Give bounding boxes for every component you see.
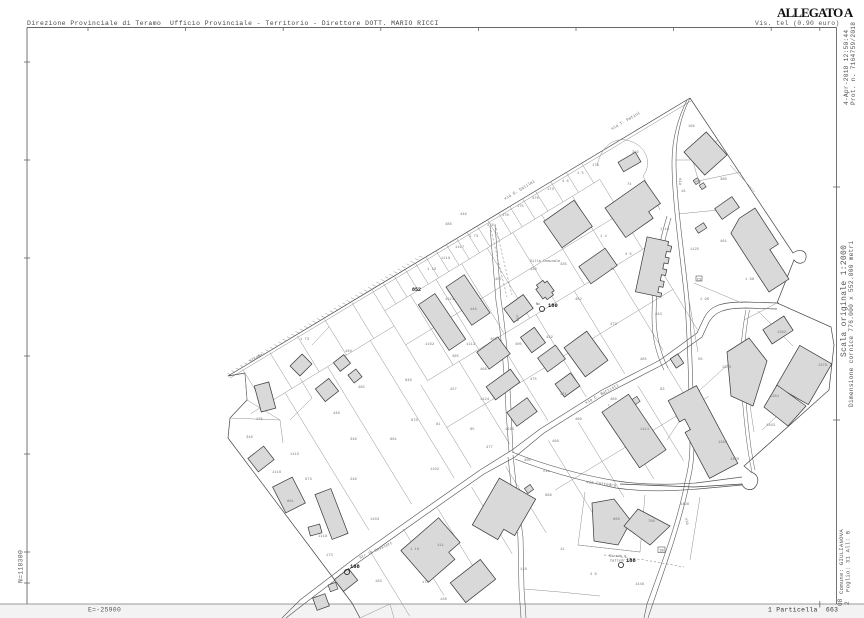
svg-text:473: 473 xyxy=(610,323,618,327)
svg-text:1 4: 1 4 xyxy=(600,235,608,239)
svg-text:846: 846 xyxy=(405,379,413,383)
svg-text:Vis. tel (0.90 euro): Vis. tel (0.90 euro) xyxy=(755,20,840,27)
svg-text:477: 477 xyxy=(486,446,493,450)
svg-text:486: 486 xyxy=(610,398,618,402)
svg-text:852: 852 xyxy=(412,287,421,293)
svg-text:74: 74 xyxy=(627,183,632,187)
svg-text:11: 11 xyxy=(560,548,565,552)
svg-text:457: 457 xyxy=(495,278,502,282)
svg-text:4 6: 4 6 xyxy=(562,180,570,184)
svg-text:788: 788 xyxy=(648,520,656,524)
svg-text:435: 435 xyxy=(560,263,568,267)
svg-text:128: 128 xyxy=(440,598,448,602)
svg-text:461: 461 xyxy=(720,240,728,244)
svg-text:2: 2 xyxy=(844,601,851,605)
svg-text:1382: 1382 xyxy=(777,331,787,335)
svg-text:178: 178 xyxy=(592,164,600,168)
svg-text:1121: 1121 xyxy=(445,298,455,302)
svg-text:446: 446 xyxy=(470,308,478,312)
svg-text:111: 111 xyxy=(437,544,445,548)
svg-text:Villa Comunale: Villa Comunale xyxy=(530,259,560,264)
svg-text:180: 180 xyxy=(548,303,558,309)
svg-text:C2: C2 xyxy=(697,278,701,282)
svg-text:1103: 1103 xyxy=(370,518,380,522)
svg-text:178: 178 xyxy=(422,581,430,585)
svg-text:1124: 1124 xyxy=(480,398,490,402)
svg-text:302: 302 xyxy=(632,151,640,155)
svg-text:1 98: 1 98 xyxy=(745,278,755,282)
svg-text:via: via xyxy=(543,469,551,474)
svg-text:4 5: 4 5 xyxy=(625,253,633,257)
svg-text:471: 471 xyxy=(560,393,568,397)
svg-text:1446: 1446 xyxy=(635,583,645,587)
svg-text:Dimensione cornice 776.000 x 5: Dimensione cornice 776.000 x 552.000 met… xyxy=(848,241,855,407)
svg-text:58: 58 xyxy=(698,358,703,362)
svg-text:400: 400 xyxy=(515,343,523,347)
svg-text:Nc: Nc xyxy=(536,303,540,307)
svg-text:432: 432 xyxy=(546,336,554,340)
svg-text:348: 348 xyxy=(246,436,254,440)
svg-text:ALLEGATO A: ALLEGATO A xyxy=(777,5,854,20)
svg-text:861: 861 xyxy=(390,438,398,442)
svg-text:468: 468 xyxy=(480,368,488,372)
svg-text:1 Particella 663: 1 Particella 663 xyxy=(768,607,838,614)
svg-text:173: 173 xyxy=(326,554,334,558)
svg-text:1115: 1115 xyxy=(290,453,300,457)
svg-text:1113: 1113 xyxy=(466,343,476,347)
svg-text:248: 248 xyxy=(350,478,358,482)
svg-text:466: 466 xyxy=(552,440,560,444)
svg-text:Direzione Provinciale di Teram: Direzione Provinciale di Teramo Ufficio … xyxy=(27,20,439,27)
svg-text:Prot. n. 7164759/2018: Prot. n. 7164759/2018 xyxy=(850,22,857,105)
svg-text:1 18: 1 18 xyxy=(660,228,670,232)
svg-text:via: via xyxy=(677,178,682,186)
svg-text:Cattedr: Cattedr xyxy=(610,559,625,564)
svg-text:489: 489 xyxy=(575,418,583,422)
svg-text:1 5: 1 5 xyxy=(577,172,585,176)
svg-text:175: 175 xyxy=(256,418,264,422)
svg-text:1118: 1118 xyxy=(318,535,328,539)
svg-text:478: 478 xyxy=(502,214,510,218)
svg-text:1 10: 1 10 xyxy=(427,268,437,272)
svg-text:188: 188 xyxy=(626,558,636,564)
svg-text:1111: 1111 xyxy=(640,428,650,432)
svg-text:E=-25900: E=-25900 xyxy=(88,607,121,614)
svg-text:452: 452 xyxy=(575,298,583,302)
svg-text:1463: 1463 xyxy=(766,424,776,428)
svg-text:4-Apr-2018 12:50:44: 4-Apr-2018 12:50:44 xyxy=(843,30,850,105)
svg-text:485: 485 xyxy=(640,358,648,362)
svg-text:380: 380 xyxy=(720,178,728,182)
svg-text:4 8: 4 8 xyxy=(590,573,598,577)
svg-text:1381: 1381 xyxy=(770,395,780,399)
svg-text:08: 08 xyxy=(837,598,844,606)
svg-text:1380: 1380 xyxy=(722,366,732,370)
svg-text:1162: 1162 xyxy=(425,343,435,347)
svg-text:476: 476 xyxy=(487,224,495,228)
svg-text:485: 485 xyxy=(358,386,366,390)
svg-text:427: 427 xyxy=(450,388,457,392)
svg-text:1 90: 1 90 xyxy=(700,298,710,302)
svg-text:85: 85 xyxy=(470,428,475,432)
svg-text:861: 861 xyxy=(287,500,295,504)
svg-text:485: 485 xyxy=(452,355,460,359)
svg-text:878: 878 xyxy=(411,419,419,423)
svg-text:486: 486 xyxy=(445,223,453,227)
svg-text:346: 346 xyxy=(350,438,358,442)
svg-text:14: 14 xyxy=(610,268,615,272)
svg-text:200: 200 xyxy=(524,459,532,463)
svg-text:1117: 1117 xyxy=(455,246,464,250)
svg-text:448: 448 xyxy=(333,412,341,416)
svg-text:466: 466 xyxy=(490,338,498,342)
svg-text:1125: 1125 xyxy=(505,428,515,432)
svg-text:Strada a: Strada a xyxy=(609,554,627,559)
svg-text:173: 173 xyxy=(547,188,555,192)
svg-text:1 10: 1 10 xyxy=(410,548,420,552)
svg-text:1 73: 1 73 xyxy=(300,338,310,342)
svg-text:1116: 1116 xyxy=(272,471,282,475)
svg-text:1446: 1446 xyxy=(680,503,690,507)
svg-text:475: 475 xyxy=(530,378,538,382)
svg-text:666: 666 xyxy=(613,518,621,522)
svg-text:188: 188 xyxy=(350,564,360,570)
svg-text:476: 476 xyxy=(532,197,540,201)
svg-text:163: 163 xyxy=(375,580,383,584)
svg-text:118: 118 xyxy=(520,568,528,572)
svg-text:873: 873 xyxy=(305,478,313,482)
svg-text:446: 446 xyxy=(460,213,468,217)
svg-text:175: 175 xyxy=(517,205,525,209)
svg-text:1379: 1379 xyxy=(818,364,828,368)
svg-text:Foglio: 31 All: B: Foglio: 31 All: B xyxy=(845,530,852,592)
svg-text:1460: 1460 xyxy=(730,458,740,462)
svg-text:438: 438 xyxy=(530,268,538,272)
svg-text:93: 93 xyxy=(660,388,665,392)
svg-text:440: 440 xyxy=(345,350,353,354)
svg-text:889: 889 xyxy=(545,494,553,498)
svg-text:1 73: 1 73 xyxy=(469,235,479,239)
svg-text:1383: 1383 xyxy=(718,441,728,445)
svg-text:1102: 1102 xyxy=(430,468,440,472)
svg-text:81: 81 xyxy=(436,423,441,427)
svg-text:166: 166 xyxy=(688,125,696,129)
svg-text:1119: 1119 xyxy=(441,257,451,261)
svg-text:16: 16 xyxy=(681,190,686,194)
svg-text:N=118300: N=118300 xyxy=(18,550,25,583)
svg-text:1125: 1125 xyxy=(690,248,700,252)
svg-text:443: 443 xyxy=(655,313,663,317)
